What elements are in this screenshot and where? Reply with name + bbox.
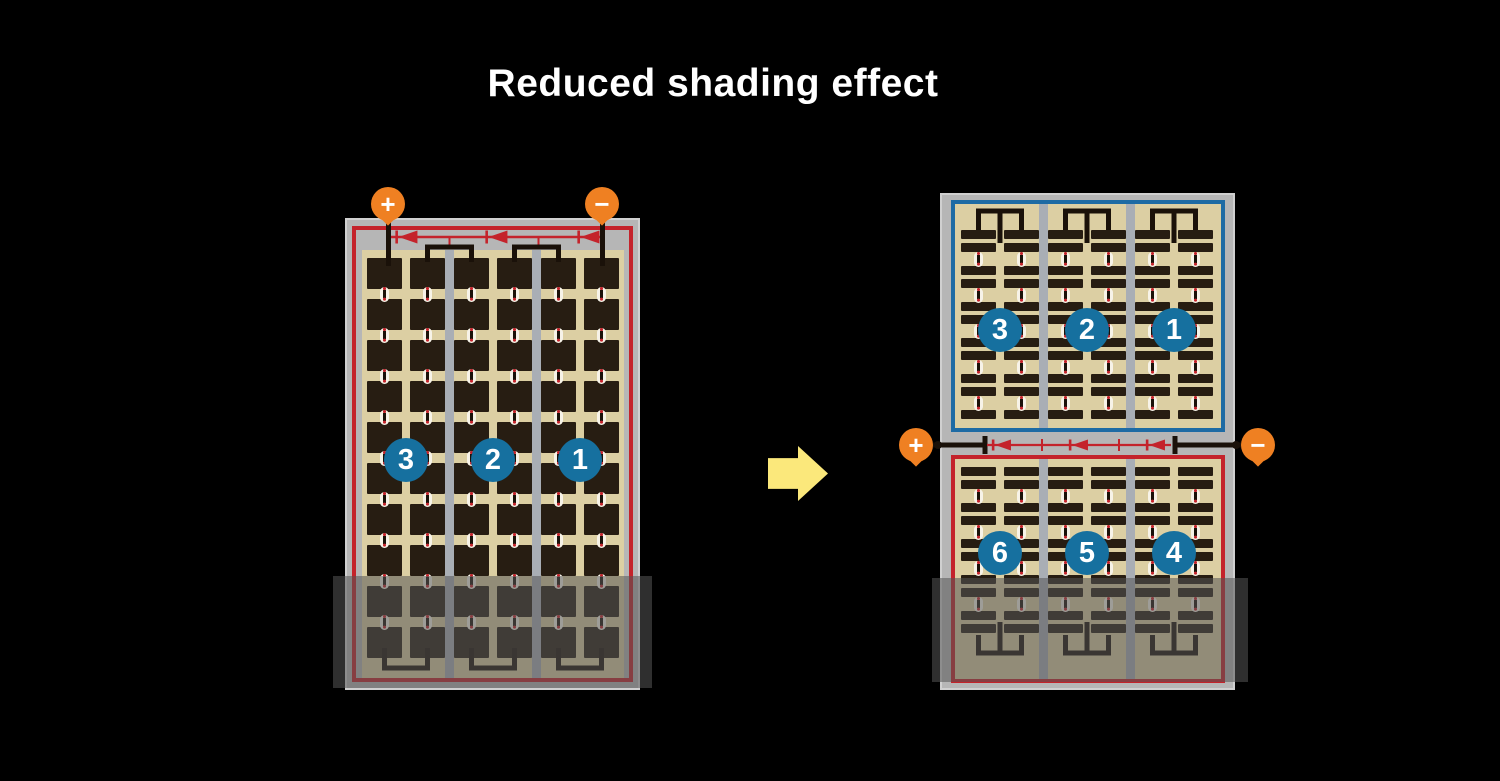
bus-bridge: [515, 247, 559, 262]
string-number-badge: 3: [978, 308, 1022, 352]
page-title: Reduced shading effect: [363, 62, 1063, 106]
bypass-diode-icon-bar: [1069, 440, 1072, 451]
bypass-diode-icon-bar: [1146, 440, 1149, 451]
string-number-badge: 4: [1152, 531, 1196, 575]
shading-overlay: [333, 576, 652, 688]
bypass-diode-icon-bar: [577, 231, 580, 244]
shading-overlay: [932, 578, 1248, 682]
junction-circuit: [895, 426, 1270, 464]
string-number-badge: 1: [558, 438, 602, 482]
minus-terminal: −: [1241, 428, 1275, 462]
bypass-diode-icon: [581, 231, 600, 244]
string-number-badge: 5: [1065, 531, 1109, 575]
bypass-diode-icon-bar: [395, 231, 398, 244]
string-number-badge: 3: [384, 438, 428, 482]
bypass-diode-icon-bar: [485, 231, 488, 244]
bypass-diode-icon: [489, 231, 508, 244]
string-number-badge: 2: [1065, 308, 1109, 352]
junction-node: [1232, 441, 1240, 449]
plus-terminal: +: [899, 428, 933, 462]
junction-node: [934, 441, 942, 449]
diagram-canvas: Reduced shading effect 321+− 321654+−: [0, 0, 1500, 781]
minus-terminal: −: [585, 187, 619, 221]
bypass-diode-icon-bar: [992, 440, 995, 451]
string-number-badge: 2: [471, 438, 515, 482]
bypass-diode-icon: [399, 231, 418, 244]
junction-end-bar: [1173, 436, 1178, 454]
plus-terminal: +: [371, 187, 405, 221]
transform-arrow-icon: [768, 446, 828, 501]
string-number-badge: 1: [1152, 308, 1196, 352]
junction-end-bar: [983, 436, 988, 454]
string-number-badge: 6: [978, 531, 1022, 575]
right-top-bus: [940, 198, 1235, 238]
bus-bridge: [428, 247, 472, 262]
